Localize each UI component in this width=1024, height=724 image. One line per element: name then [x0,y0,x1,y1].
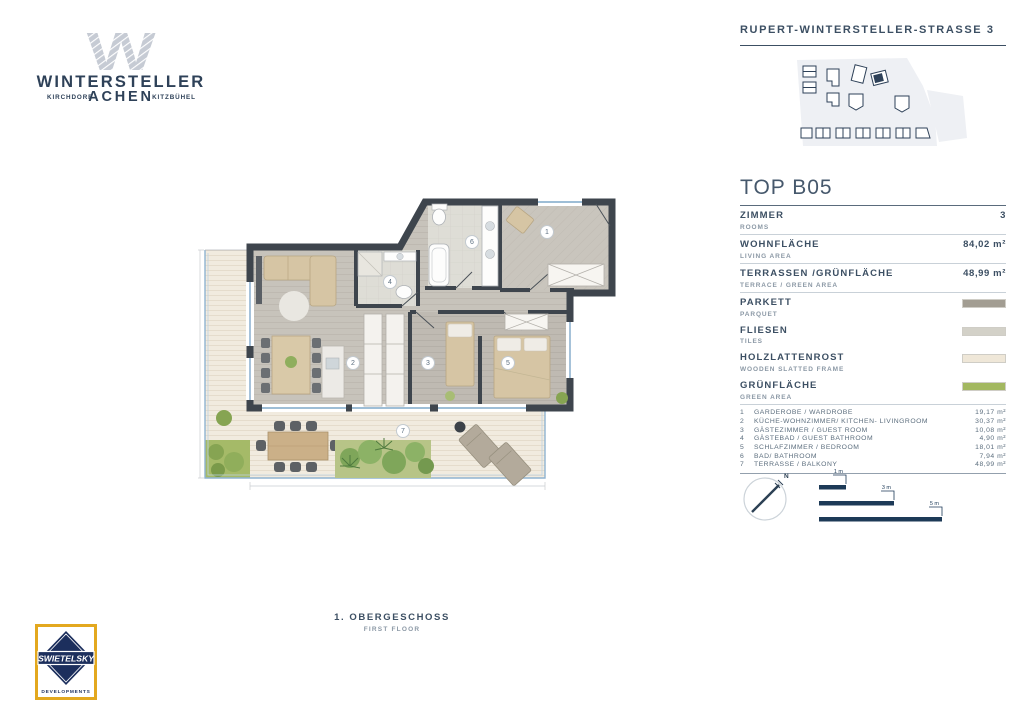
room-row-6: 6 BAD/ BATHROOM 7,94 m² [740,453,1006,462]
room-name: GARDEROBE / WARDROBE [754,409,975,418]
room-number: 6 [740,453,754,462]
room-row-1: 1 GARDEROBE / WARDROBE 19,17 m² [740,409,1006,418]
room-name: KÜCHE-WOHNZIMMER/ KITCHEN- LIVINGROOM [754,418,975,427]
room-row-4: 4 GÄSTEBAD / GUEST BATHROOM 4,90 m² [740,435,1006,444]
material-swatch-gruenflaeche [962,382,1006,391]
scale-bar-1m: 1 m [819,469,846,490]
room-number: 4 [740,435,754,444]
north-label: N [784,473,789,480]
room-area: 48,99 m² [975,461,1006,470]
stat-sublabel: LIVING AREA [740,253,820,260]
scale-label: 3 m [882,485,892,491]
room-number: 2 [740,418,754,427]
unit-title: TOP B05 [740,176,1006,206]
plan-room-badge-4: 4 [383,275,397,289]
material-sublabel: GREEN AREA [740,394,818,401]
stat-sublabel: TERRACE / GREEN AREA [740,282,893,289]
site-plan-map [787,56,972,153]
scale-bars: 1 m 3 m 5 m [813,462,953,526]
floor-label: 1. OBERGESCHOSS FIRST FLOOR [292,612,492,633]
plan-sheet: W WINTERSTELLER KIRCHDORF ACHEN KITZBÜHE… [0,0,1024,724]
stat-row-terrassen: TERRASSEN /GRÜNFLÄCHE TERRACE / GREEN AR… [740,264,1006,293]
room-name: SCHLAFZIMMER / BEDROOM [754,444,975,453]
developer-name: SWIETELSKY [38,654,95,664]
plan-room-badge-5: 5 [501,356,515,370]
material-label: PARKETT [740,297,792,309]
material-row-parkett: PARKETT PARQUET [740,293,1006,321]
material-legend: PARKETT PARQUET FLIESEN TILES HOLZLATTEN… [740,293,1006,406]
material-swatch-fliesen [962,327,1006,336]
room-area: 30,37 m² [975,418,1006,427]
north-compass-icon: N [738,468,796,526]
stat-value: 84,02 m² [963,239,1006,250]
room-area: 7,94 m² [979,453,1006,462]
stat-value: 3 [1000,210,1006,221]
room-area: 4,90 m² [979,435,1006,444]
room-number: 3 [740,427,754,436]
floor-title: 1. OBERGESCHOSS [292,612,492,623]
stat-row-wohnflaeche: WOHNFLÄCHE LIVING AREA 84,02 m² [740,235,1006,264]
green-area [205,440,250,478]
room-area: 10,08 m² [975,427,1006,436]
room-number: 5 [740,444,754,453]
room-name: BAD/ BATHROOM [754,453,979,462]
unit-stats: ZIMMER ROOMS 3 WOHNFLÄCHE LIVING AREA 84… [740,206,1006,293]
developer-logo: SWIETELSKY DEVELOPMENTS [35,624,97,700]
room-name: GÄSTEBAD / GUEST BATHROOM [754,435,979,444]
plan-room-badge-1: 1 [540,225,554,239]
stat-label: ZIMMER [740,210,784,222]
brand-logo: W WINTERSTELLER KIRCHDORF ACHEN KITZBÜHE… [28,18,213,108]
street-rule [740,45,1006,46]
unit-info-panel: TOP B05 ZIMMER ROOMS 3 WOHNFLÄCHE LIVING… [740,176,1006,474]
scale-label: 5 m [930,501,940,507]
room-row-2: 2 KÜCHE-WOHNZIMMER/ KITCHEN- LIVINGROOM … [740,418,1006,427]
room-name: GÄSTEZIMMER / GUEST ROOM [754,427,975,436]
room-area: 19,17 m² [975,409,1006,418]
material-row-holzlattenrost: HOLZLATTENROST WOODEN SLATTED FRAME [740,348,1006,376]
material-row-fliesen: FLIESEN TILES [740,321,1006,349]
developer-tagline: DEVELOPMENTS [41,689,90,695]
material-label: FLIESEN [740,325,788,337]
stat-value: 48,99 m² [963,268,1006,279]
stat-sublabel: ROOMS [740,224,784,231]
room-row-5: 5 SCHLAFZIMMER / BEDROOM 18,01 m² [740,444,1006,453]
material-swatch-parkett [962,299,1006,308]
room-number: 1 [740,409,754,418]
brand-place-right: KITZBÜHEL [152,92,196,101]
stat-row-zimmer: ZIMMER ROOMS 3 [740,206,1006,235]
room-area: 18,01 m² [975,444,1006,453]
plan-room-badge-6: 6 [465,235,479,249]
room-row-3: 3 GÄSTEZIMMER / GUEST ROOM 10,08 m² [740,427,1006,436]
material-swatch-holzlattenrost [962,354,1006,363]
plan-room-badge-2: 2 [346,356,360,370]
scale-label: 1 m [834,469,844,475]
stat-label: TERRASSEN /GRÜNFLÄCHE [740,268,893,280]
floor-plan [198,190,628,490]
brand-place-left: KIRCHDORF [47,94,93,101]
plan-room-badge-3: 3 [421,356,435,370]
floor-subtitle: FIRST FLOOR [292,626,492,633]
brand-place-center: ACHEN [88,89,154,105]
stat-label: WOHNFLÄCHE [740,239,820,251]
street-title: RUPERT-WINTERSTELLER-STRASSE 3 [740,24,1006,36]
material-sublabel: WOODEN SLATTED FRAME [740,366,844,373]
plan-room-badge-7: 7 [396,424,410,438]
material-sublabel: PARQUET [740,311,792,318]
material-label: GRÜNFLÄCHE [740,380,818,392]
material-row-gruenflaeche: GRÜNFLÄCHE GREEN AREA [740,376,1006,404]
material-label: HOLZLATTENROST [740,352,844,364]
material-sublabel: TILES [740,338,788,345]
